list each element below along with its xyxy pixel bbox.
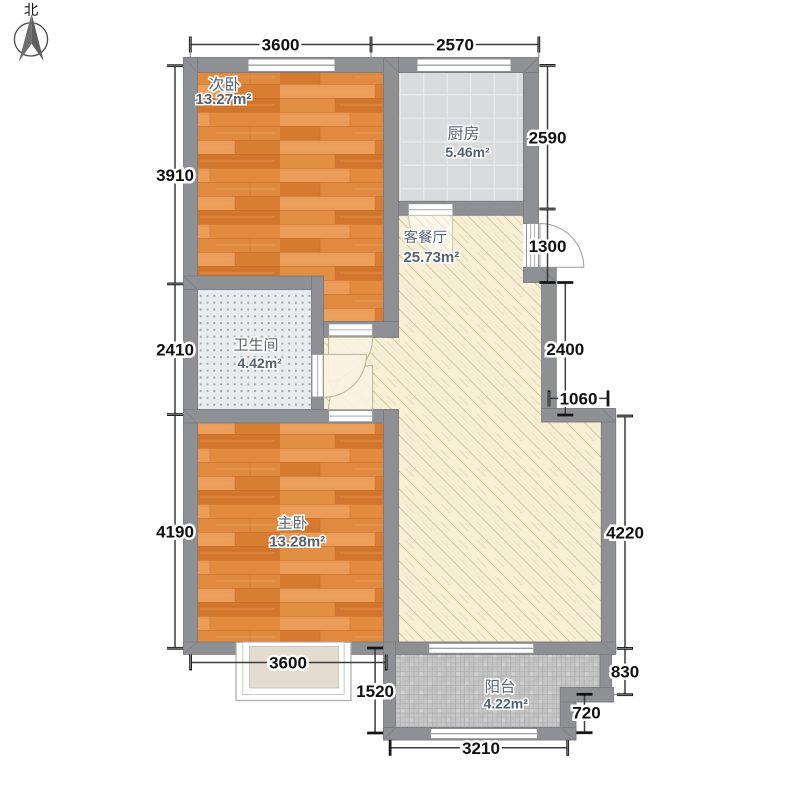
svg-text:2400: 2400 [546,340,584,359]
svg-text:3910: 3910 [156,166,194,185]
svg-text:25.73m²: 25.73m² [403,249,459,266]
svg-text:3210: 3210 [462,739,500,758]
svg-text:13.27m²: 13.27m² [196,91,252,108]
svg-text:830: 830 [611,663,639,682]
svg-text:1060: 1060 [560,390,598,409]
svg-text:2410: 2410 [156,340,194,359]
svg-text:1520: 1520 [356,682,394,701]
svg-text:1300: 1300 [529,237,567,256]
svg-text:5.46m²: 5.46m² [445,144,490,160]
svg-text:2570: 2570 [436,36,474,55]
svg-text:3600: 3600 [269,654,307,673]
svg-text:2590: 2590 [529,128,567,147]
svg-text:720: 720 [572,704,600,723]
svg-text:3600: 3600 [262,36,300,55]
svg-text:4.42m²: 4.42m² [238,355,283,371]
svg-text:4220: 4220 [606,523,644,542]
svg-text:4.22m²: 4.22m² [484,695,529,711]
svg-text:4190: 4190 [156,523,194,542]
svg-text:13.28m²: 13.28m² [269,533,325,550]
